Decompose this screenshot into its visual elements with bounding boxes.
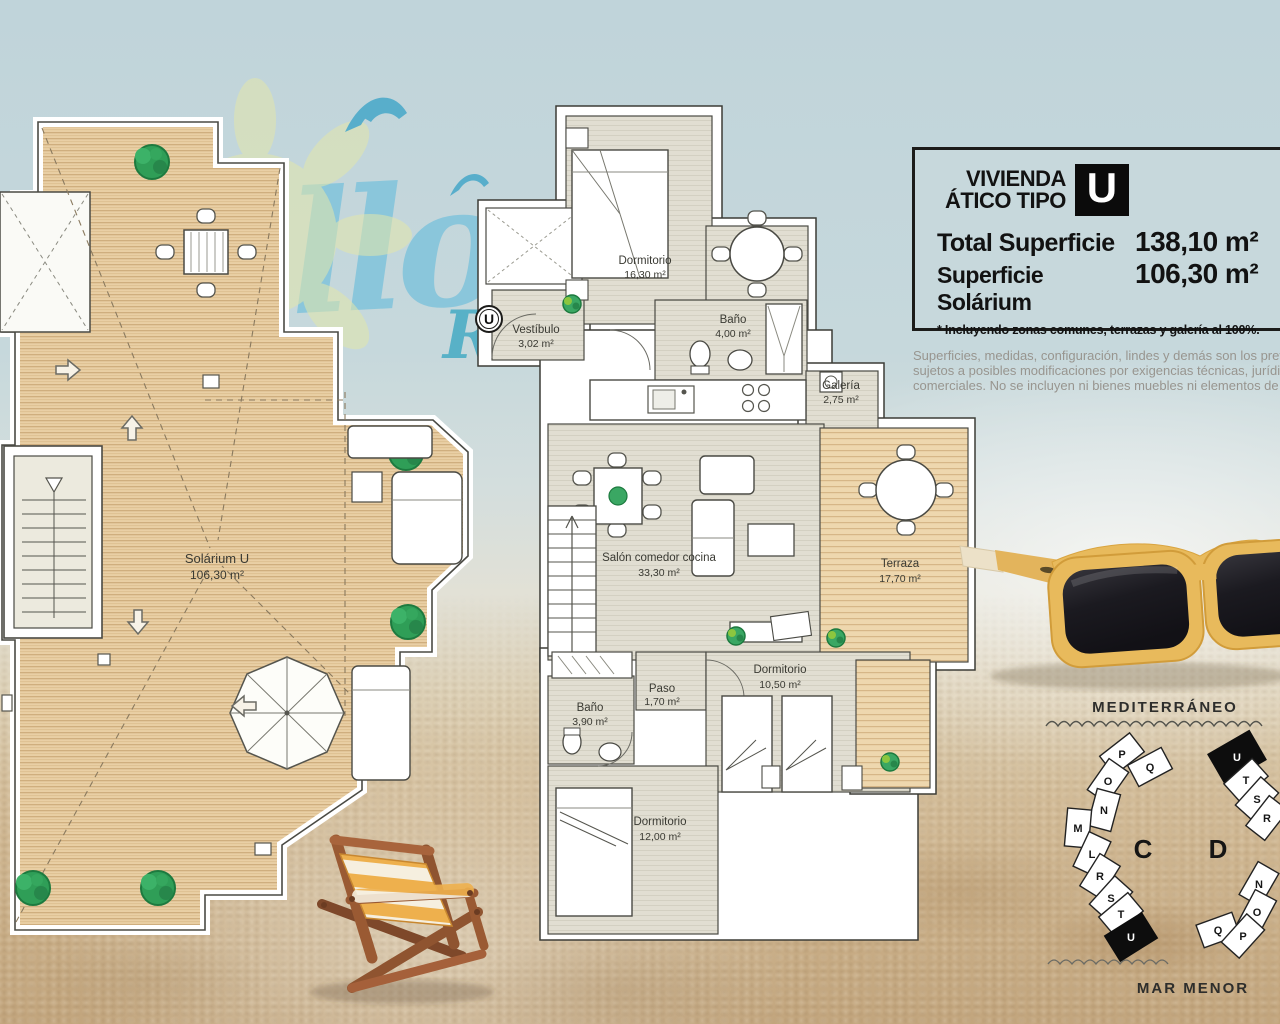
shoreline-wave <box>1046 722 1262 727</box>
title-block: VIVIENDA ÁTICO TIPO U Total Superficie 1… <box>912 147 1280 331</box>
disclaimer-line-2: sujetos a posibles modificaciones por ex… <box>913 363 1280 378</box>
title-head: VIVIENDA ÁTICO TIPO U <box>945 164 1280 216</box>
room-area: 16,30 m² <box>624 269 666 281</box>
title-line-1: VIVIENDA <box>945 168 1066 190</box>
parasol-icon <box>230 657 344 769</box>
room-area: 12,00 m² <box>639 831 681 843</box>
room-label: Galería <box>822 380 860 392</box>
sunglasses-photo <box>960 535 1280 690</box>
unit-letter: T <box>1118 909 1125 921</box>
unit-letter: O <box>1253 907 1262 919</box>
block-label-d: D <box>1209 834 1228 864</box>
room-area: 33,30 m² <box>638 567 680 579</box>
disclaimer-line-3: comerciales. No se incluyen ni bienes mu… <box>913 378 1280 393</box>
unit-letter: Q <box>1214 925 1223 937</box>
unit-letter: U <box>1233 752 1241 764</box>
lagoon-label: MAR MENOR <box>1137 980 1249 997</box>
room-label: Vestíbulo <box>512 324 559 336</box>
sea-label: MEDITERRÁNEO <box>1092 699 1238 716</box>
room-label: Terraza <box>881 558 920 570</box>
bridge <box>1191 563 1216 581</box>
entrance-marker-letter: U <box>484 311 494 327</box>
unit-letter: S <box>1107 893 1114 905</box>
shower-icon <box>766 304 802 374</box>
unit-letter: P <box>1118 749 1125 761</box>
bush-icon <box>135 145 169 179</box>
solarium-area: 106,30 m² <box>190 568 244 582</box>
bush-icon <box>391 605 425 639</box>
kitchen-counter-icon <box>590 380 806 420</box>
bush-icon <box>141 871 175 905</box>
washbasin-icon <box>599 743 621 761</box>
bush-icon <box>16 871 50 905</box>
room-area: 10,50 m² <box>759 679 801 691</box>
room-label: Baño <box>577 702 604 714</box>
unit-letter: T <box>1243 775 1250 787</box>
elevator-shaft <box>486 208 582 284</box>
unit-letter: S <box>1253 794 1260 806</box>
interior-stairs-icon <box>548 506 596 656</box>
staircase-icon <box>4 446 102 638</box>
site-plan: MEDITERRÁNEO P Q O N M <box>1046 699 1280 997</box>
single-bed-icon <box>556 788 632 916</box>
room-area: 3,90 m² <box>572 716 608 728</box>
building-block-d: U T S R N O Q P D <box>1196 730 1280 958</box>
solarium-surface-label: Superficie Solárium <box>937 262 1135 316</box>
toilet-icon <box>690 341 710 374</box>
unit-letter: P <box>1239 931 1246 943</box>
bidet-icon <box>728 350 752 370</box>
total-label: Total Superficie <box>937 229 1135 258</box>
entrance-marker: U <box>476 306 502 332</box>
poster: llo R <box>0 0 1280 1024</box>
unit-letter: O <box>1104 776 1113 788</box>
plant-icon <box>727 627 745 645</box>
title-lines: VIVIENDA ÁTICO TIPO <box>945 168 1066 212</box>
beach-chair-photo <box>310 840 494 1004</box>
room-area: 2,75 m² <box>823 394 859 406</box>
room-area: 4,00 m² <box>715 328 751 340</box>
unit-letter: Q <box>1146 762 1155 774</box>
seagull-icon <box>345 98 407 132</box>
room-area: 3,02 m² <box>518 338 554 350</box>
plant-icon <box>827 629 845 647</box>
unit-letter: R <box>1263 813 1271 825</box>
type-badge: U <box>1075 164 1129 216</box>
seagull-icon <box>450 174 489 196</box>
room-label: Dormitorio <box>753 664 806 676</box>
unit-letter: L <box>1089 849 1096 861</box>
solarium-label: Solárium U <box>185 551 249 566</box>
disclaimer: Superficies, medidas, configuración, lin… <box>913 348 1280 396</box>
title-footnote: * Incluyendo zonas comunes, terrazas y g… <box>937 323 1280 337</box>
wardrobe-icon <box>552 652 632 678</box>
total-value: 138,10 m² <box>1135 226 1258 258</box>
lagoon-wave <box>1048 960 1168 964</box>
total-row: Total Superficie 138,10 m² <box>937 226 1280 258</box>
building-block-c: P Q O N M L R S T U C <box>1064 733 1172 962</box>
disclaimer-line-1: Superficies, medidas, configuración, lin… <box>913 348 1280 363</box>
right-lens <box>1201 535 1280 651</box>
toilet-icon <box>563 728 581 754</box>
left-lens <box>1046 549 1205 669</box>
solarium-surface-value: 106,30 m² <box>1135 258 1258 290</box>
apartment-floor-plan: U Dormitorio 16,30 m² Vestíbulo 3,02 m² … <box>476 106 975 940</box>
solarium-row: Superficie Solárium 106,30 m² <box>937 258 1280 316</box>
plant-icon <box>881 753 899 771</box>
plant-icon <box>563 295 581 313</box>
unit-letter: M <box>1073 823 1082 835</box>
unit-letter: N <box>1255 879 1263 891</box>
unit-letter: R <box>1096 871 1104 883</box>
room-label: Dormitorio <box>618 255 671 267</box>
room-area: 1,70 m² <box>644 696 680 708</box>
room-area: 17,70 m² <box>879 573 921 585</box>
room-label: Dormitorio <box>633 816 686 828</box>
sun-lounger-icon <box>352 666 410 780</box>
unit-letter: U <box>1127 932 1135 944</box>
block-label-c: C <box>1134 834 1153 864</box>
room-label: Paso <box>649 683 675 695</box>
unit-letter: N <box>1100 805 1108 817</box>
title-line-2: ÁTICO TIPO <box>945 190 1066 212</box>
room-label: Baño <box>720 314 747 326</box>
room-label: Salón comedor cocina <box>602 552 716 564</box>
